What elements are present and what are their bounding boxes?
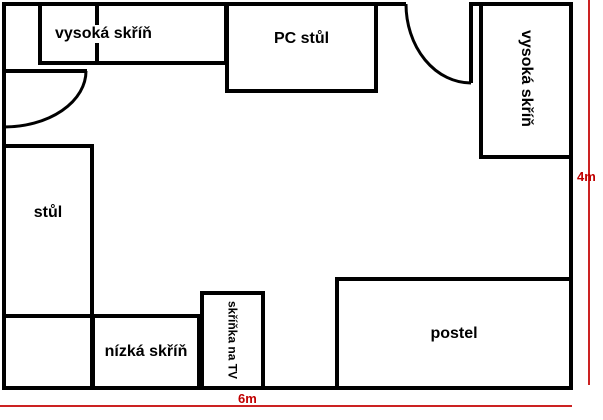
wardrobe-right-label: vysoká skříň [517,30,535,127]
desk-box: stůl [2,144,94,318]
left-door-arc [4,71,86,127]
bed-box: postel [335,277,573,390]
width-dimension-label: 6m [238,391,257,406]
wardrobe-top-box: vysoká skříň [38,2,228,65]
top-door-arc [406,4,471,83]
wardrobe-right-box: vysoká skříň [479,2,573,159]
pc-desk-box: PC stůl [225,2,378,93]
low-cabinet-box: nízká skříň [91,314,201,390]
width-dimension-line [0,405,572,407]
tv-cabinet-box: skříňka na TV [200,291,265,390]
height-dimension-label: 4m [577,169,596,184]
wardrobe-top-label: vysoká skříň [55,25,152,43]
bed-label: postel [430,325,477,343]
low-cabinet-label: nízká skříň [105,343,188,361]
height-dimension-line [588,0,590,385]
pc-desk-label: PC stůl [274,30,329,48]
floor-plan: vysoká skříň PC stůl vysoká skříň stůl n… [0,0,603,420]
unlabeled-corner-box [2,314,94,390]
tv-cabinet-label: skříňka na TV [226,301,240,379]
desk-label: stůl [34,204,62,222]
